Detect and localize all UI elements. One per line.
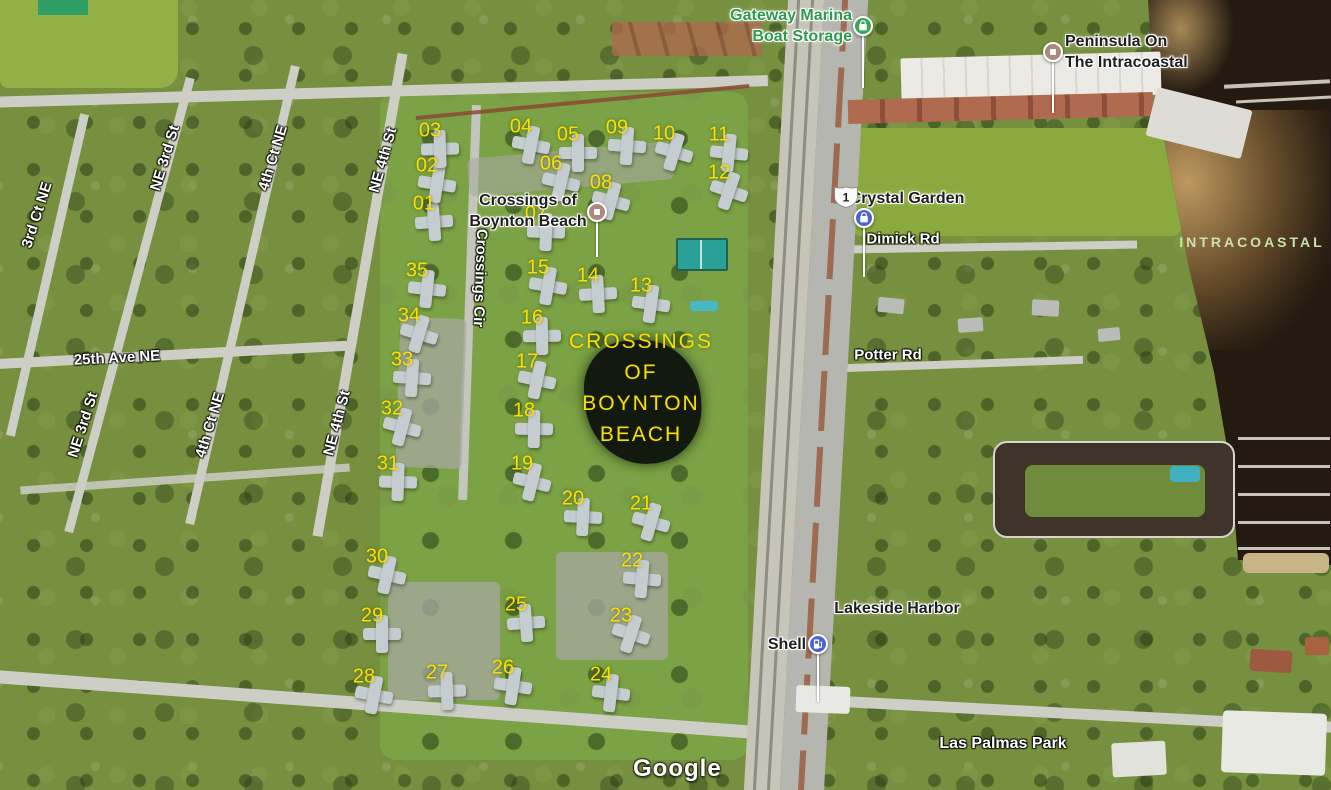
area-label-line: BEACH [569,419,713,450]
road-label-4th-ct-ne: 4th Ct NE [255,123,291,193]
crystal-garden-marker-stem [863,226,865,277]
road-label-3rd-ct-ne: 3rd Ct NE [18,180,55,250]
bag-icon [856,19,870,33]
unit-number-17: 17 [516,351,538,374]
square-icon [590,205,604,219]
poi-label-line: Gateway Marina [730,5,852,26]
unit-number-01: 01 [413,193,435,216]
unit-number-21: 21 [630,493,652,516]
water-label-intracoastal: INTRACOASTAL [1179,234,1324,250]
crossings-of-boynton-beach-marker-stem [596,220,598,257]
peninsula-on-the-intracoastal-marker-stem [1052,60,1054,113]
shell-label[interactable]: Shell [768,634,806,655]
peninsula-on-the-intracoastal-marker[interactable] [1043,42,1063,62]
unit-number-18: 18 [513,400,535,423]
poi-label-line: The Intracoastal [1065,52,1188,73]
unit-number-15: 15 [527,257,549,280]
poi-label-line: Crossings of [469,190,586,211]
satellite-map-canvas[interactable]: 0102030405060708091011121314151617181920… [0,0,1331,790]
road-label-ne-4th-st: NE 4th St [366,126,401,195]
svg-text:1: 1 [843,191,850,205]
unit-number-05: 05 [557,124,579,147]
poi-label-line: Shell [768,634,806,655]
unit-number-14: 14 [577,265,599,288]
road-label-ne-3rd-st-2: NE 3rd St [64,390,101,459]
crystal-garden-label[interactable]: Crystal Garden [850,188,965,209]
unit-number-22: 22 [621,550,643,573]
road-label-4th-ct-ne-2: 4th Ct NE [192,390,228,460]
road-label-dimick-rd: Dimick Rd [866,231,939,248]
shell-marker[interactable] [808,634,828,654]
area-label-line: BOYNTON [569,388,713,419]
area-label-crossings-of-boynton-beach: CROSSINGSOFBOYNTONBEACH [569,326,713,450]
fuel-icon [811,637,825,651]
unit-number-29: 29 [361,605,383,628]
unit-number-12: 12 [708,162,730,185]
unit-number-28: 28 [353,666,375,689]
unit-number-33: 33 [391,349,413,372]
us-route-shield-icon: 1 [833,185,859,209]
map-labels-layer: 0102030405060708091011121314151617181920… [0,0,1331,790]
unit-number-08: 08 [590,172,612,195]
road-label-potter-rd: Potter Rd [854,347,922,364]
unit-number-30: 30 [366,546,388,569]
unit-number-19: 19 [511,453,533,476]
google-watermark: Google [633,755,722,783]
bag-icon [857,211,871,225]
poi-label-line: Boynton Beach [469,211,586,232]
unit-number-27: 27 [426,662,448,685]
shell-marker-stem [817,652,819,702]
poi-label-line: Boat Storage [730,26,852,47]
road-label-crossings-cir: Crossings Cir [470,229,490,328]
unit-number-09: 09 [606,117,628,140]
unit-number-03: 03 [419,120,441,143]
gateway-marina-boat-storage-marker-stem [862,34,864,88]
unit-number-26: 26 [492,657,514,680]
area-label-line: CROSSINGS [569,326,713,357]
area-label-line: OF [569,357,713,388]
las-palmas-park-label[interactable]: Las Palmas Park [939,733,1066,754]
unit-number-25: 25 [505,594,527,617]
unit-number-16: 16 [521,307,543,330]
unit-number-10: 10 [653,123,675,146]
gateway-marina-boat-storage-label[interactable]: Gateway MarinaBoat Storage [730,5,852,47]
square-icon [1046,45,1060,59]
poi-label-line: Las Palmas Park [939,733,1066,754]
unit-number-04: 04 [510,116,532,139]
unit-number-34: 34 [398,305,420,328]
unit-number-35: 35 [406,260,428,283]
gateway-marina-boat-storage-marker[interactable] [853,16,873,36]
unit-number-24: 24 [590,664,612,687]
poi-label-line: Lakeside Harbor [834,598,959,619]
unit-number-13: 13 [630,275,652,298]
unit-number-02: 02 [416,155,438,178]
poi-label-line: Peninsula On [1065,31,1188,52]
unit-number-32: 32 [381,398,403,421]
road-label-ne-4th-st-2: NE 4th St [320,389,354,458]
unit-number-20: 20 [562,488,584,511]
crossings-of-boynton-beach-label[interactable]: Crossings ofBoynton Beach [469,190,586,232]
road-label-ne-3rd-st: NE 3rd St [147,123,183,193]
unit-number-06: 06 [540,153,562,176]
unit-number-31: 31 [377,453,399,476]
poi-label-line: Crystal Garden [850,188,965,209]
crossings-of-boynton-beach-marker[interactable] [587,202,607,222]
road-label-25th-ave-ne: 25th Ave NE [73,347,160,368]
lakeside-harbor-label[interactable]: Lakeside Harbor [834,598,959,619]
unit-number-11: 11 [709,124,730,147]
unit-number-23: 23 [610,605,632,628]
crystal-garden-marker[interactable] [854,208,874,228]
peninsula-on-the-intracoastal-label[interactable]: Peninsula OnThe Intracoastal [1065,31,1188,73]
